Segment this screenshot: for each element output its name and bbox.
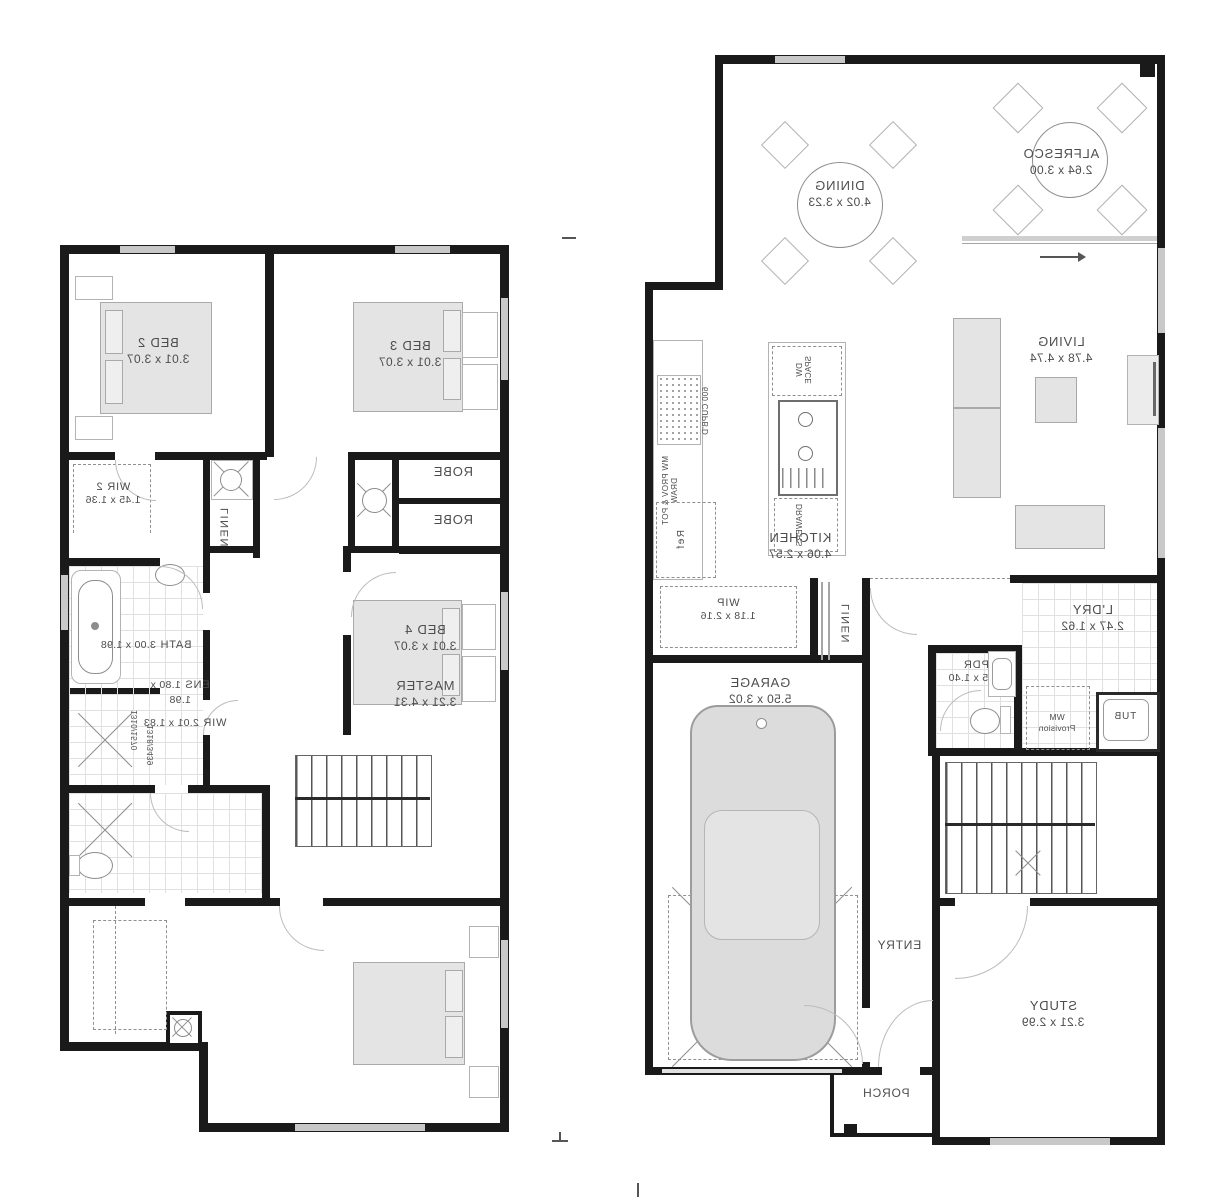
door-arc — [279, 906, 324, 951]
bed3-name: BED 3 — [355, 338, 465, 355]
fridge-label: Ref — [676, 522, 687, 558]
dining-chair — [869, 237, 917, 285]
tub-label: TUB — [1098, 710, 1152, 723]
garage-name: GARAGE — [680, 675, 840, 692]
bed4-name: BED 4 — [365, 622, 485, 639]
alfresco-chair — [993, 83, 1044, 134]
alfresco-label: ALFRESCO 2.64 x 3.00 — [1002, 146, 1120, 178]
master-name: MASTER — [355, 678, 495, 695]
bed3-label: BED 3 3.01 x 3.07 — [355, 338, 465, 370]
alignment-tick — [559, 1132, 561, 1140]
door-arc — [274, 457, 317, 500]
wir-name: WIR — [203, 717, 227, 729]
sliding-door — [962, 236, 1157, 241]
alignment-tick — [637, 1183, 639, 1197]
bed3-dims: 3.01 x 3.07 — [355, 355, 465, 371]
alfresco-name: ALFRESCO — [1002, 146, 1120, 163]
stair-handrail — [295, 797, 430, 800]
linen-label: LINEN — [219, 498, 231, 558]
upper-floor-plan: BED 2 3.01 x 3.07 BED 3 3.01 x 3.07 WIR … — [55, 240, 515, 1150]
window — [501, 298, 508, 380]
vanity-basin — [992, 658, 1012, 690]
wall — [188, 785, 270, 793]
kitchen-dims: 4.06 x 2.57 — [740, 547, 860, 563]
porch-post — [844, 1124, 857, 1137]
robe-top-label: ROBE — [407, 464, 499, 481]
car-badge — [756, 718, 767, 729]
wall — [265, 245, 274, 457]
dining-dims: 4.02 x 3.23 — [782, 195, 897, 211]
entry-label: ENTRY — [866, 938, 932, 954]
coffee-table — [1035, 377, 1077, 423]
living-label: LIVING 4.78 x 4.74 — [1002, 334, 1120, 366]
alfresco-post — [1140, 62, 1155, 77]
garage-door — [662, 1069, 842, 1073]
kitchen-name: KITCHEN — [740, 530, 860, 547]
wall — [343, 635, 351, 735]
bedside-table — [469, 1066, 499, 1098]
bulkhead-dashed — [870, 578, 1010, 579]
front-door-arc — [878, 1000, 933, 1067]
bath-name: BATH — [160, 639, 192, 651]
ldry-label: L'DRY 2.47 x 1.62 — [1035, 602, 1150, 634]
bed2-dims: 3.01 x 3.07 — [103, 352, 213, 368]
stair-note-2: 1318/3439 — [147, 695, 156, 795]
wall — [392, 452, 399, 553]
wall — [323, 898, 509, 906]
wall — [645, 282, 653, 1075]
void-dashed — [93, 920, 167, 1030]
master-label: MASTER 3.21 x 4.31 — [355, 678, 495, 710]
wall — [348, 452, 355, 553]
door-arc — [351, 572, 396, 617]
alfresco-chair — [1097, 83, 1148, 134]
linen-door-line — [828, 582, 830, 660]
toilet-tank — [1000, 706, 1011, 734]
wall — [60, 785, 155, 793]
living-name: LIVING — [1002, 334, 1120, 351]
wip-label: WIP 1.18 x 2.16 — [668, 596, 788, 624]
study-dims: 3.21 x 2.99 — [988, 1015, 1118, 1031]
bedside-table — [75, 276, 113, 300]
window — [120, 246, 175, 253]
bed2-name: BED 2 — [103, 335, 213, 352]
master-dims: 3.21 x 4.31 — [355, 695, 495, 711]
wall — [60, 452, 115, 460]
wall — [262, 785, 270, 898]
bath-dims: 3.00 x 1.98 — [101, 639, 156, 651]
linen-door-line — [821, 582, 823, 660]
wall — [399, 498, 509, 504]
bed4-dims: 3.01 x 3.07 — [365, 639, 485, 655]
cooktop-burner — [798, 412, 813, 427]
wall — [60, 898, 145, 906]
ens-name: ENS — [185, 679, 210, 691]
bed2-label: BED 2 3.01 x 3.07 — [103, 335, 213, 367]
wir2-label: WIR 2 1.45 x 1.36 — [69, 480, 157, 508]
robe-bottom-label: ROBE — [407, 512, 499, 529]
alignment-tick — [562, 237, 576, 239]
wm-provision-label: WM Provision — [1026, 712, 1088, 734]
drain-dot — [91, 622, 99, 630]
wall — [399, 546, 509, 554]
window — [775, 56, 845, 63]
wall — [862, 578, 870, 663]
shaft-x-icon — [172, 1017, 192, 1037]
dining-label: DINING 4.02 x 3.23 — [782, 178, 897, 210]
wip-name: WIP — [668, 596, 788, 610]
floorplan-page: { "ground_floor": { "rooms": { "alfresco… — [0, 0, 1227, 1200]
wall — [862, 663, 870, 1008]
wall — [203, 452, 210, 558]
wall — [928, 645, 936, 755]
wir2-dims: 1.45 x 1.36 — [69, 494, 157, 508]
wall — [932, 756, 940, 898]
pillow — [445, 1016, 463, 1058]
linen-ground-label: LINEN — [840, 590, 852, 658]
wip-dims: 1.18 x 2.16 — [668, 610, 788, 624]
toilet — [77, 852, 113, 879]
car-roof — [704, 810, 820, 940]
wall — [203, 546, 260, 553]
alignment-tick — [552, 1140, 568, 1142]
wall — [645, 282, 723, 290]
ens-dims: 1.80 x 1.98 — [150, 679, 190, 706]
stair-handrail — [945, 823, 1095, 826]
study-label: STUDY 3.21 x 2.99 — [988, 998, 1118, 1030]
study-name: STUDY — [988, 998, 1118, 1015]
sofa — [953, 318, 1001, 408]
porch-wall — [830, 1075, 834, 1137]
door-arc — [955, 906, 1028, 979]
living-dims: 4.78 x 4.74 — [1002, 351, 1120, 367]
porch-label: PORCH — [836, 1086, 936, 1102]
window — [1158, 428, 1165, 558]
wall — [185, 898, 280, 906]
stair-note-1: 1310/1570 — [131, 680, 140, 780]
slider-track — [962, 243, 1157, 244]
alfresco-dims: 2.64 x 3.00 — [1002, 163, 1120, 179]
wm-line1: WM — [1026, 712, 1088, 723]
slider-arrow-line — [1040, 256, 1080, 258]
window — [295, 1124, 425, 1131]
wm-line2: Provision — [1026, 723, 1088, 734]
wall — [1157, 55, 1165, 1145]
wall — [715, 55, 723, 290]
shower-icon — [77, 800, 133, 860]
tv — [1153, 362, 1156, 416]
bath-label: BATH 3.00 x 1.98 — [90, 638, 202, 653]
wall — [920, 1067, 932, 1075]
oven-grill — [782, 468, 830, 488]
window — [61, 575, 68, 630]
pillow — [445, 970, 463, 1012]
alfresco-chair — [1097, 185, 1148, 236]
shower-icon — [77, 710, 133, 770]
dining-chair — [761, 121, 809, 169]
slider-arrow-head — [1078, 252, 1086, 262]
wall — [203, 558, 210, 593]
wall — [810, 578, 818, 663]
bedside-table — [75, 416, 113, 440]
ldry-dims: 2.47 x 1.62 — [1035, 619, 1150, 635]
wall — [253, 452, 260, 558]
bedside-table — [462, 364, 498, 410]
window — [395, 246, 450, 253]
ground-floor-plan: 600 CUPB'D MW PROV & POT DRAW Ref DW SPA… — [640, 50, 1220, 1155]
wall — [932, 898, 940, 1145]
alfresco-chair — [993, 185, 1044, 236]
wall — [60, 245, 69, 1051]
dining-chair — [869, 121, 917, 169]
window — [501, 592, 508, 670]
wall — [1010, 575, 1165, 583]
dw-space-label: DW SPACE — [796, 348, 814, 392]
kitchen-label: KITCHEN 4.06 x 2.57 — [740, 530, 860, 562]
wall — [60, 558, 160, 566]
wir2-name: WIR 2 — [69, 480, 157, 494]
cooktop-burner — [798, 446, 813, 461]
toilet-tank — [69, 855, 80, 876]
door-arc — [870, 588, 917, 635]
staircase — [295, 755, 432, 847]
bedside-table — [462, 312, 498, 358]
window — [990, 1138, 1110, 1145]
wall — [155, 452, 267, 460]
fan-circle — [220, 469, 242, 491]
sofa — [953, 408, 1001, 498]
wall — [645, 655, 870, 663]
pantry-cupboard-label: 600 CUPB'D — [702, 376, 711, 446]
pantry-cupboard — [657, 375, 701, 445]
wall — [199, 1042, 208, 1132]
void-dashed-line — [115, 906, 116, 1034]
skylight-circle — [362, 488, 387, 513]
dining-name: DINING — [782, 178, 897, 195]
garage-label: GARAGE 5.50 x 3.02 — [680, 675, 840, 707]
dining-chair — [761, 237, 809, 285]
wall — [870, 1067, 882, 1075]
sofa — [1015, 505, 1105, 549]
bedside-table — [469, 926, 499, 958]
window — [501, 940, 508, 1028]
ldry-name: L'DRY — [1035, 602, 1150, 619]
wall — [343, 546, 351, 572]
wall — [348, 546, 399, 553]
bed4-label: BED 4 3.01 x 3.07 — [365, 622, 485, 654]
stair-x-icon — [1015, 850, 1041, 876]
wall — [1030, 898, 1165, 906]
window — [1158, 248, 1165, 333]
